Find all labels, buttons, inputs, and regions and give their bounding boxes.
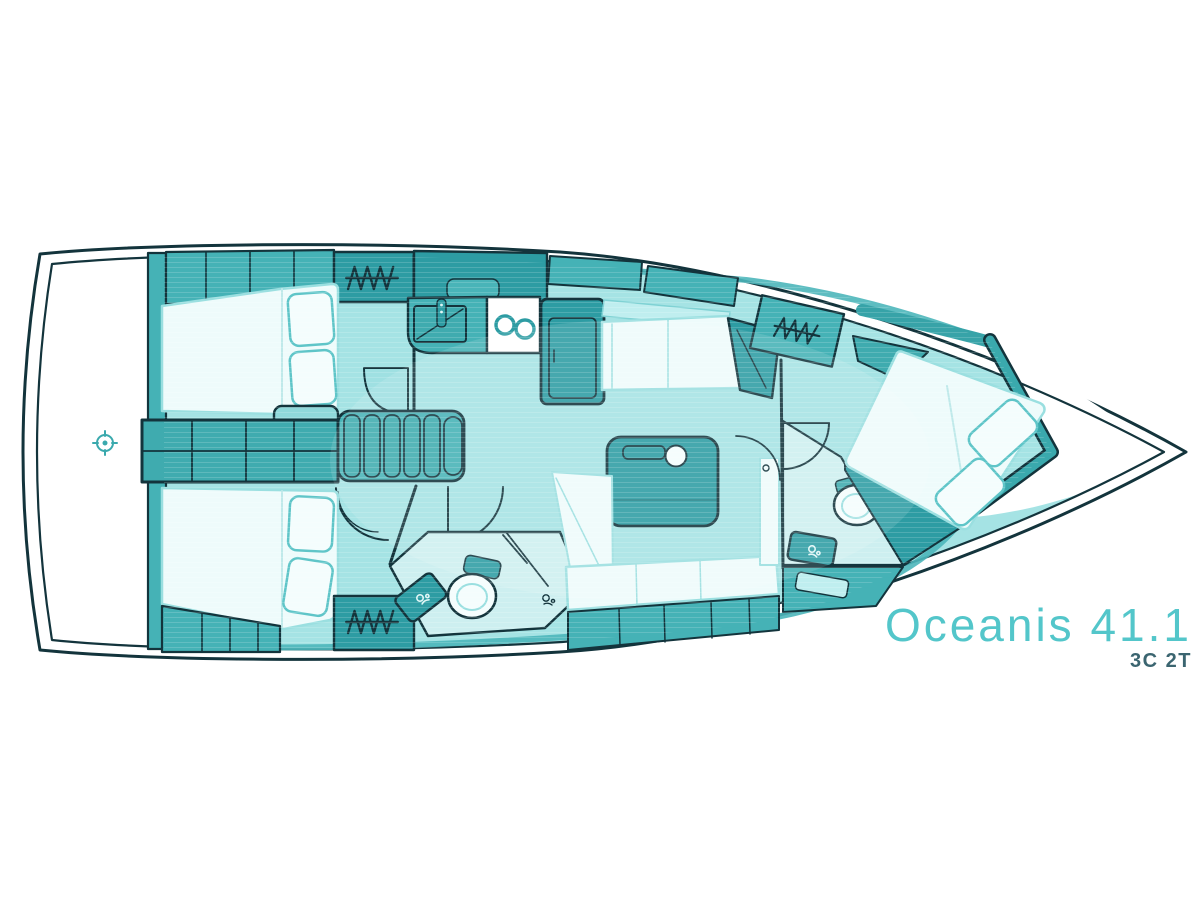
model-title: Oceanis 41.1 bbox=[885, 599, 1192, 651]
floorplan-svg: Oceanis 41.1 3C 2T bbox=[0, 0, 1200, 900]
floor-highlight bbox=[330, 320, 930, 600]
stern-cockpit bbox=[37, 254, 150, 646]
variant-label: 3C 2T bbox=[1130, 650, 1192, 672]
yacht-floorplan-screenshot: Oceanis 41.1 3C 2T bbox=[0, 0, 1200, 900]
